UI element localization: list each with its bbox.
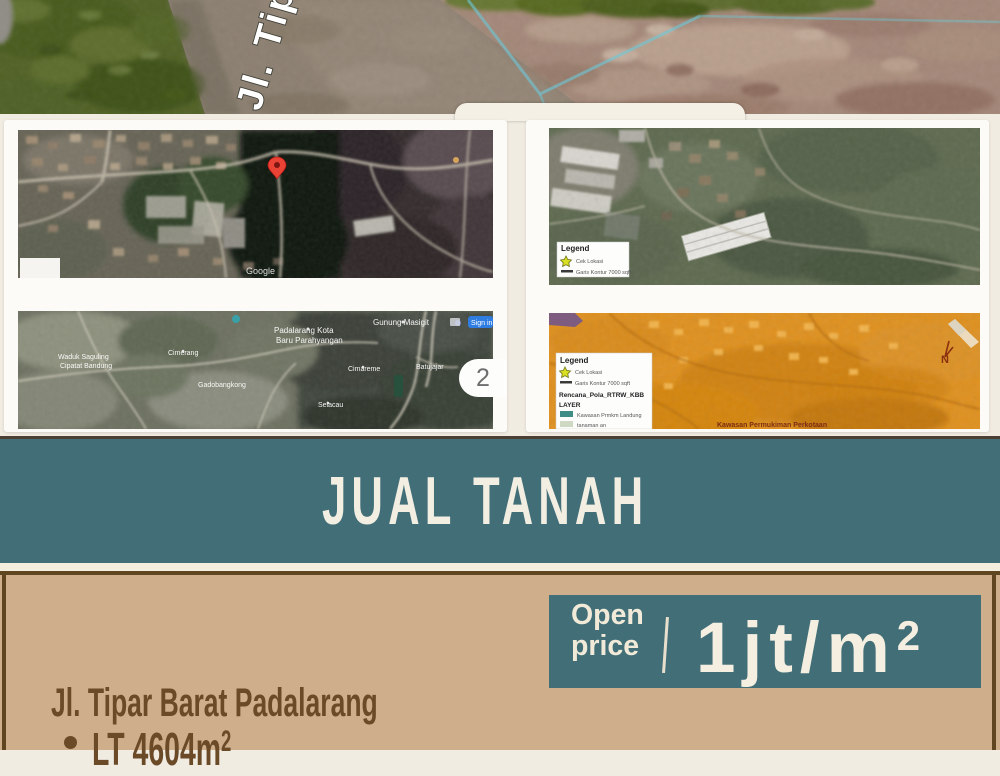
svg-text:Cipatat Bandung: Cipatat Bandung [60, 363, 112, 370]
svg-text:LAYER: LAYER [559, 402, 581, 409]
svg-text:Garis Kontur 7000 sqft: Garis Kontur 7000 sqft [576, 270, 632, 276]
svg-text:Sign in: Sign in [471, 320, 493, 327]
svg-text:Legend: Legend [560, 356, 589, 365]
svg-text:Cek Lokasi: Cek Lokasi [575, 370, 602, 376]
svg-text:Cek Lokasi: Cek Lokasi [576, 259, 603, 265]
svg-text:tanaman an: tanaman an [577, 423, 606, 429]
svg-text:Google: Google [246, 266, 275, 276]
svg-text:Rencana_Pola_RTRW_KBB: Rencana_Pola_RTRW_KBB [559, 392, 644, 399]
svg-text:Selacau: Selacau [318, 402, 343, 409]
svg-text:Padalarang Kota: Padalarang Kota [274, 326, 334, 335]
svg-text:Garis Kontur 7000 sqft: Garis Kontur 7000 sqft [575, 381, 631, 387]
svg-text:Baru Parahyangan: Baru Parahyangan [276, 336, 343, 345]
svg-text:N: N [941, 354, 949, 366]
svg-text:Kawasan Prmkm Landung: Kawasan Prmkm Landung [577, 413, 642, 419]
svg-text:Kawasan Permukiman Perkotaan: Kawasan Permukiman Perkotaan [717, 422, 827, 429]
svg-text:Gunung Masigit: Gunung Masigit [373, 318, 430, 327]
svg-text:Gadobangkong: Gadobangkong [198, 382, 246, 389]
svg-text:Legend: Legend [561, 244, 590, 253]
svg-text:Batujajar: Batujajar [416, 364, 444, 371]
svg-text:Waduk Saguling: Waduk Saguling [58, 354, 109, 361]
